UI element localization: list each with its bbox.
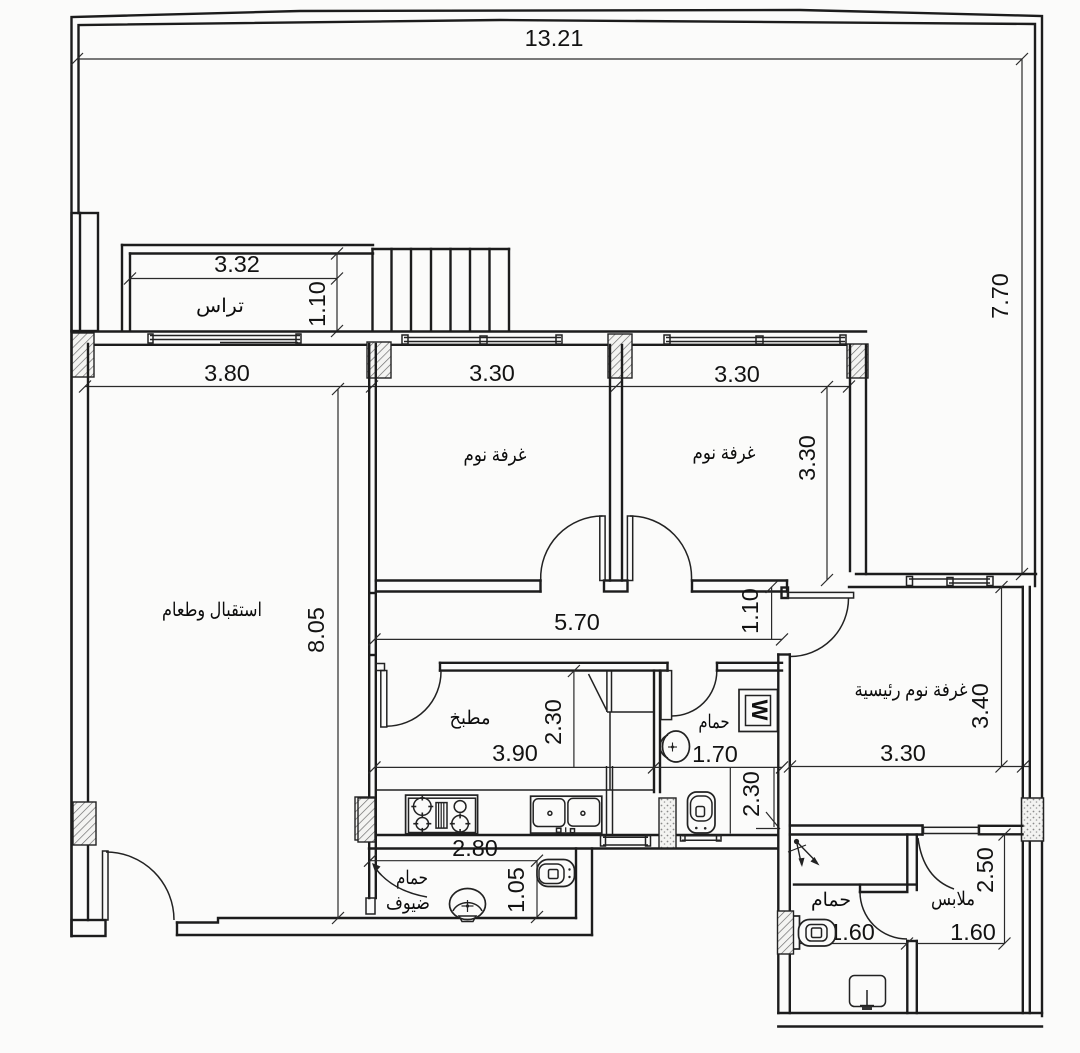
svg-text:2.50: 2.50 [972, 847, 998, 893]
svg-text:3.90: 3.90 [492, 740, 538, 766]
svg-text:3.30: 3.30 [794, 435, 820, 481]
svg-text:3.40: 3.40 [967, 683, 993, 729]
svg-text:2.30: 2.30 [738, 771, 764, 817]
svg-text:حمام: حمام [396, 868, 428, 889]
svg-text:1.60: 1.60 [950, 919, 996, 945]
svg-text:غرفة نوم: غرفة نوم [693, 443, 756, 464]
svg-text:2.30: 2.30 [540, 699, 566, 745]
svg-text:غرفة نوم رئيسية: غرفة نوم رئيسية [855, 680, 968, 701]
svg-text:3.80: 3.80 [204, 360, 250, 386]
svg-text:استقبال وطعام: استقبال وطعام [162, 600, 262, 621]
svg-text:غرفة نوم: غرفة نوم [464, 445, 527, 466]
svg-text:1.10: 1.10 [737, 588, 763, 634]
svg-text:2.80: 2.80 [452, 835, 498, 861]
svg-text:13.21: 13.21 [525, 25, 584, 51]
svg-text:3.32: 3.32 [214, 251, 260, 277]
svg-text:حمام: حمام [699, 712, 730, 733]
svg-text:7.70: 7.70 [987, 273, 1013, 319]
svg-text:حمام: حمام [811, 890, 851, 911]
svg-text:3.30: 3.30 [469, 360, 515, 386]
svg-text:W: W [747, 700, 772, 721]
svg-text:3.30: 3.30 [714, 361, 760, 387]
svg-text:3.30: 3.30 [880, 740, 926, 766]
svg-text:ملابس: ملابس [931, 889, 975, 910]
svg-text:مطبخ: مطبخ [450, 708, 491, 729]
svg-text:1.10: 1.10 [304, 281, 330, 327]
svg-text:5.70: 5.70 [554, 609, 600, 635]
svg-text:تراس: تراس [196, 296, 244, 317]
svg-text:8.05: 8.05 [303, 607, 329, 653]
svg-text:1.05: 1.05 [503, 867, 529, 913]
svg-text:1.70: 1.70 [692, 741, 738, 767]
